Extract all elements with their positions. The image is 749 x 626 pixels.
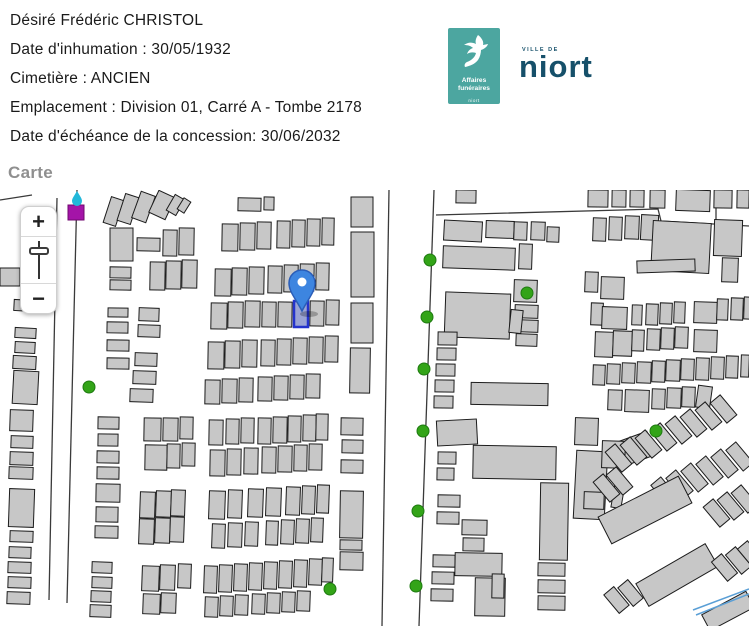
tomb bbox=[473, 445, 557, 479]
tomb bbox=[264, 562, 278, 589]
tomb bbox=[130, 389, 153, 403]
tree-dot-marker bbox=[521, 287, 533, 299]
tomb bbox=[143, 594, 161, 615]
tomb bbox=[262, 302, 276, 327]
tomb bbox=[341, 418, 363, 435]
tomb bbox=[266, 488, 282, 517]
tomb bbox=[7, 592, 30, 605]
tomb bbox=[249, 267, 264, 294]
tomb bbox=[612, 190, 626, 207]
tomb bbox=[274, 376, 288, 400]
tomb bbox=[95, 526, 118, 538]
tomb bbox=[722, 258, 739, 283]
tomb bbox=[171, 490, 186, 516]
tomb bbox=[182, 260, 197, 288]
tomb bbox=[139, 519, 155, 545]
road-path bbox=[382, 190, 389, 626]
tomb bbox=[96, 507, 118, 522]
tomb bbox=[433, 555, 455, 567]
tomb bbox=[306, 374, 320, 398]
tomb bbox=[138, 325, 160, 338]
tomb bbox=[302, 486, 316, 514]
tomb bbox=[239, 378, 253, 402]
zoom-in-button[interactable]: + bbox=[21, 207, 56, 237]
tree-dot-marker bbox=[324, 583, 336, 595]
tomb bbox=[438, 452, 456, 464]
tomb bbox=[682, 387, 696, 407]
tomb bbox=[215, 269, 231, 296]
tomb bbox=[107, 322, 128, 333]
tomb bbox=[547, 227, 560, 242]
tomb bbox=[204, 566, 218, 593]
tree-dot-marker bbox=[424, 254, 436, 266]
tomb bbox=[228, 523, 243, 547]
tomb bbox=[646, 304, 659, 325]
tomb bbox=[342, 440, 363, 453]
tree-dot-marker bbox=[417, 425, 429, 437]
tomb bbox=[667, 388, 682, 408]
tomb bbox=[293, 338, 307, 364]
tomb bbox=[437, 468, 454, 480]
tomb bbox=[273, 417, 287, 443]
tomb bbox=[281, 520, 295, 544]
tomb bbox=[681, 359, 695, 380]
tomb bbox=[225, 341, 240, 368]
tomb bbox=[261, 340, 275, 366]
tomb bbox=[0, 268, 20, 286]
tomb bbox=[593, 218, 607, 241]
tomb bbox=[309, 444, 322, 470]
tomb bbox=[135, 353, 157, 367]
tomb bbox=[432, 572, 454, 584]
tomb bbox=[660, 303, 673, 324]
tomb bbox=[110, 280, 131, 290]
tomb bbox=[258, 418, 271, 444]
tomb bbox=[625, 216, 640, 239]
tomb bbox=[142, 566, 160, 592]
tomb bbox=[297, 591, 311, 611]
tomb bbox=[444, 220, 483, 242]
tomb bbox=[90, 605, 111, 618]
tomb bbox=[9, 467, 33, 480]
tomb bbox=[96, 484, 120, 502]
tomb bbox=[351, 197, 373, 227]
tomb bbox=[463, 538, 484, 551]
tomb bbox=[155, 518, 171, 544]
tomb bbox=[437, 512, 459, 524]
tomb bbox=[166, 261, 181, 289]
tomb bbox=[652, 361, 666, 382]
tomb bbox=[292, 220, 305, 247]
tree-dot-marker bbox=[83, 381, 95, 393]
tomb bbox=[266, 521, 279, 545]
tomb bbox=[235, 595, 249, 615]
tomb bbox=[322, 218, 334, 245]
tomb bbox=[110, 228, 133, 261]
tomb bbox=[222, 224, 238, 251]
tomb bbox=[637, 259, 695, 273]
tomb bbox=[92, 562, 112, 574]
tomb bbox=[607, 364, 621, 384]
tomb bbox=[179, 228, 194, 255]
tomb bbox=[277, 339, 291, 365]
tomb bbox=[15, 327, 36, 338]
tomb bbox=[212, 524, 226, 548]
tomb bbox=[317, 485, 330, 513]
tomb bbox=[278, 302, 292, 327]
tomb bbox=[584, 492, 605, 510]
tomb bbox=[519, 244, 533, 269]
tomb bbox=[211, 303, 227, 329]
tomb bbox=[717, 299, 729, 320]
tomb bbox=[8, 562, 31, 574]
tomb bbox=[244, 448, 258, 474]
affaires-funeraires-sublabel: niort bbox=[468, 98, 479, 103]
tomb bbox=[92, 577, 112, 589]
tomb bbox=[437, 348, 456, 360]
tomb bbox=[234, 564, 248, 591]
tomb bbox=[133, 371, 156, 385]
tomb bbox=[350, 348, 371, 393]
tomb bbox=[97, 467, 119, 479]
tomb bbox=[257, 222, 271, 249]
tomb bbox=[652, 389, 666, 409]
tomb bbox=[309, 337, 323, 363]
tomb bbox=[208, 342, 224, 369]
tomb bbox=[650, 190, 665, 208]
tomb bbox=[238, 198, 261, 211]
tomb bbox=[538, 563, 565, 576]
tomb bbox=[107, 358, 129, 369]
tomb bbox=[714, 190, 732, 208]
road-path bbox=[67, 190, 77, 603]
tomb bbox=[222, 379, 237, 403]
tomb bbox=[145, 445, 167, 470]
tomb bbox=[107, 340, 129, 351]
tomb bbox=[97, 451, 119, 463]
tomb bbox=[278, 446, 292, 472]
tomb bbox=[462, 520, 487, 535]
tomb bbox=[531, 222, 546, 240]
tomb bbox=[219, 565, 233, 592]
tomb bbox=[666, 360, 681, 381]
tomb bbox=[637, 362, 652, 383]
deceased-name: Désiré Frédéric CHRISTOL bbox=[10, 6, 362, 35]
tomb bbox=[431, 589, 453, 601]
tomb bbox=[161, 593, 177, 614]
tomb bbox=[296, 519, 310, 543]
tomb bbox=[340, 491, 364, 538]
tomb bbox=[15, 341, 36, 353]
tomb bbox=[351, 303, 373, 343]
tomb bbox=[286, 487, 301, 515]
tomb bbox=[674, 302, 686, 323]
tomb bbox=[438, 495, 460, 507]
dove-icon bbox=[454, 28, 494, 76]
map-section-title: Carte bbox=[8, 163, 53, 183]
tomb bbox=[11, 436, 33, 449]
tomb bbox=[538, 596, 565, 610]
burial-date-line: Date d'inhumation : 30/05/1932 bbox=[10, 35, 362, 64]
tomb bbox=[10, 452, 33, 466]
tomb bbox=[137, 238, 160, 251]
tomb bbox=[227, 449, 241, 475]
tomb bbox=[249, 563, 263, 590]
tomb bbox=[694, 330, 718, 353]
tomb bbox=[205, 380, 220, 404]
cemetery-map[interactable]: + − bbox=[0, 190, 749, 626]
tomb bbox=[182, 443, 195, 466]
tomb bbox=[294, 560, 308, 587]
tomb bbox=[242, 340, 257, 367]
map-zoom-control: + − bbox=[20, 206, 57, 314]
tomb bbox=[632, 330, 645, 351]
tomb bbox=[316, 263, 329, 290]
ville-de-niort-logo: VILLE DE niort bbox=[519, 47, 593, 82]
tomb bbox=[277, 221, 290, 248]
tomb bbox=[608, 390, 623, 410]
tomb bbox=[434, 396, 453, 408]
tomb bbox=[731, 298, 744, 320]
tomb bbox=[436, 419, 477, 446]
tomb bbox=[311, 518, 324, 542]
tomb bbox=[316, 414, 328, 440]
tomb bbox=[625, 390, 650, 413]
tomb bbox=[676, 190, 711, 212]
zoom-out-button[interactable]: − bbox=[21, 283, 56, 313]
tomb bbox=[180, 417, 193, 439]
tomb bbox=[340, 540, 362, 550]
tomb bbox=[228, 302, 243, 328]
tomb bbox=[438, 332, 457, 345]
tree-dot-marker bbox=[421, 311, 433, 323]
tomb bbox=[10, 410, 34, 432]
tomb bbox=[205, 597, 219, 617]
niort-wordmark: niort bbox=[519, 52, 593, 82]
tomb bbox=[290, 375, 304, 399]
pin-shadow bbox=[300, 311, 318, 317]
purple-square-marker bbox=[68, 205, 84, 220]
tomb bbox=[726, 356, 739, 378]
tomb bbox=[456, 190, 476, 203]
road-path bbox=[0, 195, 32, 200]
tomb bbox=[630, 190, 644, 207]
tomb bbox=[9, 547, 31, 559]
tomb bbox=[178, 564, 192, 588]
tomb bbox=[443, 246, 516, 270]
tomb bbox=[240, 223, 255, 250]
plot-location-line: Emplacement : Division 01, Carré A - Tom… bbox=[10, 93, 362, 122]
tree-dot-marker bbox=[650, 425, 662, 437]
tomb bbox=[232, 268, 247, 295]
tomb bbox=[245, 522, 259, 546]
tomb bbox=[436, 364, 455, 376]
tomb bbox=[351, 232, 374, 297]
tomb bbox=[675, 327, 689, 348]
tree-dot-marker bbox=[412, 505, 424, 517]
tomb bbox=[139, 308, 159, 322]
tomb bbox=[268, 266, 282, 293]
zoom-slider-handle[interactable] bbox=[29, 247, 49, 255]
tomb bbox=[279, 561, 293, 588]
tomb bbox=[303, 415, 316, 441]
tomb bbox=[613, 331, 633, 357]
tomb bbox=[307, 219, 320, 246]
tomb bbox=[108, 308, 128, 317]
tomb bbox=[595, 332, 614, 358]
tomb bbox=[516, 334, 537, 347]
tomb bbox=[220, 596, 234, 616]
tomb bbox=[98, 434, 118, 446]
tomb bbox=[325, 336, 338, 362]
tomb bbox=[8, 577, 31, 589]
tomb bbox=[696, 358, 710, 380]
tomb bbox=[228, 490, 243, 518]
tomb bbox=[741, 355, 749, 377]
tomb bbox=[209, 420, 223, 445]
tomb bbox=[435, 380, 454, 392]
water-drop-marker bbox=[72, 191, 82, 206]
tomb bbox=[575, 418, 599, 446]
tomb bbox=[341, 460, 363, 473]
tomb bbox=[602, 307, 628, 330]
tomb bbox=[245, 301, 260, 327]
tree-dot-marker bbox=[410, 580, 422, 592]
tomb bbox=[622, 363, 636, 383]
tomb bbox=[163, 230, 177, 256]
tomb bbox=[340, 552, 363, 570]
zoom-slider[interactable] bbox=[21, 237, 56, 283]
tomb bbox=[210, 450, 225, 476]
tomb bbox=[267, 593, 281, 613]
tomb bbox=[167, 444, 180, 468]
tomb bbox=[248, 489, 264, 518]
tomb bbox=[144, 418, 161, 441]
tomb bbox=[455, 553, 502, 577]
tomb bbox=[711, 357, 725, 379]
tomb bbox=[12, 370, 39, 404]
tomb bbox=[538, 580, 565, 593]
tomb bbox=[694, 302, 718, 324]
tomb bbox=[601, 277, 625, 300]
tomb bbox=[170, 517, 185, 542]
tomb bbox=[309, 559, 323, 585]
tomb bbox=[258, 377, 272, 401]
deceased-record: Désiré Frédéric CHRISTOL Date d'inhumati… bbox=[10, 6, 362, 151]
tomb bbox=[252, 594, 266, 614]
tomb bbox=[282, 592, 296, 612]
tomb bbox=[632, 305, 643, 325]
tomb bbox=[661, 328, 675, 349]
tomb bbox=[647, 329, 661, 350]
tomb bbox=[492, 574, 504, 598]
tomb bbox=[241, 418, 254, 443]
tomb bbox=[713, 220, 742, 257]
tomb bbox=[509, 309, 523, 333]
tomb bbox=[744, 297, 749, 319]
tomb bbox=[588, 190, 608, 207]
tomb bbox=[163, 418, 178, 441]
tomb bbox=[13, 355, 37, 369]
tomb bbox=[160, 565, 176, 591]
tomb bbox=[140, 492, 156, 519]
tomb bbox=[110, 267, 131, 278]
tomb bbox=[288, 416, 301, 442]
tomb bbox=[471, 382, 548, 405]
affaires-funeraires-label: Affaires funéraires bbox=[458, 77, 490, 92]
tomb bbox=[10, 531, 33, 543]
tree-dot-marker bbox=[418, 363, 430, 375]
tomb bbox=[322, 558, 334, 582]
tomb bbox=[585, 272, 599, 292]
concession-expiry-line: Date d'échéance de la concession: 30/06/… bbox=[10, 122, 362, 151]
tomb bbox=[156, 491, 172, 518]
tomb bbox=[609, 217, 623, 240]
tomb bbox=[98, 417, 119, 429]
affaires-funeraires-logo: Affaires funéraires niort bbox=[448, 28, 500, 104]
tomb bbox=[593, 365, 606, 385]
tomb bbox=[8, 489, 34, 528]
tomb bbox=[737, 190, 749, 208]
tomb bbox=[209, 491, 226, 520]
cemetery-line: Cimetière : ANCIEN bbox=[10, 64, 362, 93]
tomb bbox=[636, 544, 718, 607]
tomb bbox=[514, 222, 528, 240]
tomb bbox=[262, 447, 276, 473]
tomb bbox=[294, 445, 307, 471]
tomb bbox=[150, 262, 165, 290]
tomb bbox=[91, 591, 111, 603]
pin-hole bbox=[298, 278, 307, 287]
tomb bbox=[326, 300, 339, 325]
tomb bbox=[264, 197, 274, 210]
tomb bbox=[486, 221, 515, 239]
cemetery-map-canvas[interactable] bbox=[0, 190, 749, 626]
tomb bbox=[226, 419, 239, 444]
tomb bbox=[539, 483, 568, 560]
